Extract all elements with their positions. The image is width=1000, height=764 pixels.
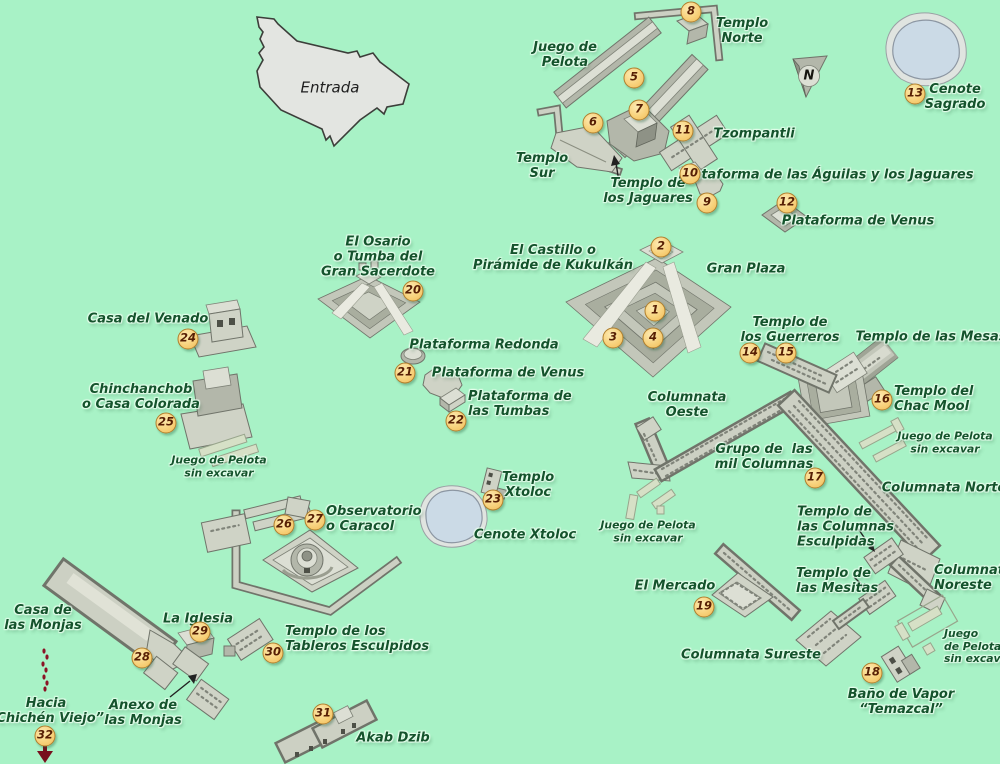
marker-25: 25 <box>156 413 177 434</box>
label-templo-de-las-mesas: Templo de las Mesas <box>856 329 1000 344</box>
structure-juego-sin-excavar-centro <box>626 478 676 519</box>
label-templo-xtoloc: Templo Xtoloc <box>502 470 554 500</box>
compass-north-label: N <box>804 69 815 84</box>
label-cenote-sagrado: Cenote Sagrado <box>925 82 986 112</box>
label-plataforma-de-venus-centro: Plataforma de Venus <box>432 365 584 380</box>
label-templo-norte: Templo Norte <box>716 16 768 46</box>
marker-29: 29 <box>190 622 211 643</box>
label-casa-de-las-monjas: Casa de las Monjas <box>4 603 82 633</box>
chichen-itza-map: N 12345678910111213141516171819202122232… <box>0 0 1000 764</box>
label-observatorio: Observatorio o Caracol <box>326 504 422 534</box>
label-gran-plaza: Gran Plaza <box>707 261 786 276</box>
label-templo-de-las-mesitas: Templo de las Mesitas <box>796 566 878 596</box>
label-bano-de-vapor: Baño de Vapor “Temazcal” <box>848 687 955 717</box>
marker-28: 28 <box>132 648 153 669</box>
marker-17: 17 <box>805 468 826 489</box>
marker-3: 3 <box>603 328 624 349</box>
marker-10: 10 <box>680 164 701 185</box>
label-el-castillo: El Castillo o Pirámide de Kukulkán <box>473 243 633 273</box>
structure-casa-de-las-monjas <box>67 578 191 689</box>
label-casa-del-venado: Casa del Venado <box>88 311 209 326</box>
marker-5: 5 <box>624 68 645 89</box>
label-entrada: Entrada <box>301 79 360 96</box>
label-templo-del-chac-mool: Templo del Chac Mool <box>894 384 973 414</box>
marker-16: 16 <box>872 390 893 411</box>
structure-casa-del-venado <box>190 300 256 357</box>
marker-19: 19 <box>694 597 715 618</box>
marker-8: 8 <box>681 2 702 23</box>
marker-32: 32 <box>35 726 56 747</box>
label-plataforma-redonda: Plataforma Redonda <box>409 337 558 352</box>
marker-14: 14 <box>740 343 761 364</box>
marker-15: 15 <box>776 343 797 364</box>
marker-2: 2 <box>651 237 672 258</box>
marker-26: 26 <box>274 515 295 536</box>
marker-1: 1 <box>645 301 666 322</box>
label-juego-sin-excavar-centro: Juego de Pelota sin excavar <box>600 519 695 544</box>
label-cenote-xtoloc: Cenote Xtoloc <box>474 527 576 542</box>
label-templo-de-los-guerreros: Templo de los Guerreros <box>740 315 839 345</box>
marker-23: 23 <box>483 490 504 511</box>
marker-9: 9 <box>697 193 718 214</box>
marker-11: 11 <box>673 121 694 142</box>
structure-el-mercado <box>712 553 791 617</box>
structure-bano-de-vapor <box>881 642 920 682</box>
label-chinchanchob: Chinchanchob o Casa Colorada <box>82 382 200 412</box>
chichen-viejo-arrow <box>37 745 53 763</box>
label-columnata-norte: Columnata Norte <box>882 480 1000 495</box>
marker-6: 6 <box>583 113 604 134</box>
structure-cenote-sagrado <box>886 13 966 86</box>
marker-7: 7 <box>629 100 650 121</box>
label-plataforma-de-las-tumbas: Plataforma de las Tumbas <box>468 389 572 419</box>
marker-18: 18 <box>862 663 883 684</box>
label-akab-dzib: Akab Dzib <box>356 730 429 745</box>
label-columnata-noreste: Columnata Noreste <box>934 563 1000 593</box>
marker-24: 24 <box>178 329 199 350</box>
marker-21: 21 <box>395 363 416 384</box>
label-juego-sin-excavar-sureste: Juego de Pelota sin excavar <box>944 628 1000 666</box>
label-juego-de-pelota: Juego de Pelota <box>533 40 597 70</box>
label-columnata-sureste: Columnata Sureste <box>681 647 821 662</box>
label-templo-sur: Templo Sur <box>516 151 568 181</box>
marker-20: 20 <box>403 281 424 302</box>
label-templo-columnas-esculpidas: Templo de las Columnas Esculpidas <box>797 504 894 549</box>
label-columnata-oeste: Columnata Oeste <box>648 390 727 420</box>
label-templo-tableros-esculpidos: Templo de los Tableros Esculpidos <box>285 624 429 654</box>
marker-30: 30 <box>263 643 284 664</box>
label-el-mercado: El Mercado <box>635 578 716 593</box>
chichen-viejo-trail <box>41 648 48 691</box>
label-plataforma-de-venus-norte: Plataforma de Venus <box>782 213 934 228</box>
marker-31: 31 <box>313 704 334 725</box>
marker-13: 13 <box>905 84 926 105</box>
label-el-osario: El Osario o Tumba del Gran Sacerdote <box>321 234 435 279</box>
label-juego-sin-excavar-este: Juego de Pelota sin excavar <box>897 430 992 455</box>
label-grupo-mil-columnas: Grupo de las mil Columnas <box>715 442 813 472</box>
label-anexo-de-las-monjas: Anexo de las Monjas <box>104 698 182 728</box>
marker-22: 22 <box>446 411 467 432</box>
label-plataforma-aguilas-jaguares: Plataforma de las Águilas y los Jaguares <box>679 167 974 182</box>
label-hacia-chichen-viejo: Hacia “Chichén Viejo” <box>0 696 104 726</box>
marker-4: 4 <box>643 328 664 349</box>
label-tzompantli: Tzompantli <box>713 126 794 141</box>
marker-12: 12 <box>777 193 798 214</box>
label-juego-sin-excavar-oeste: Juego de Pelota sin excavar <box>171 454 266 479</box>
marker-27: 27 <box>305 510 326 531</box>
